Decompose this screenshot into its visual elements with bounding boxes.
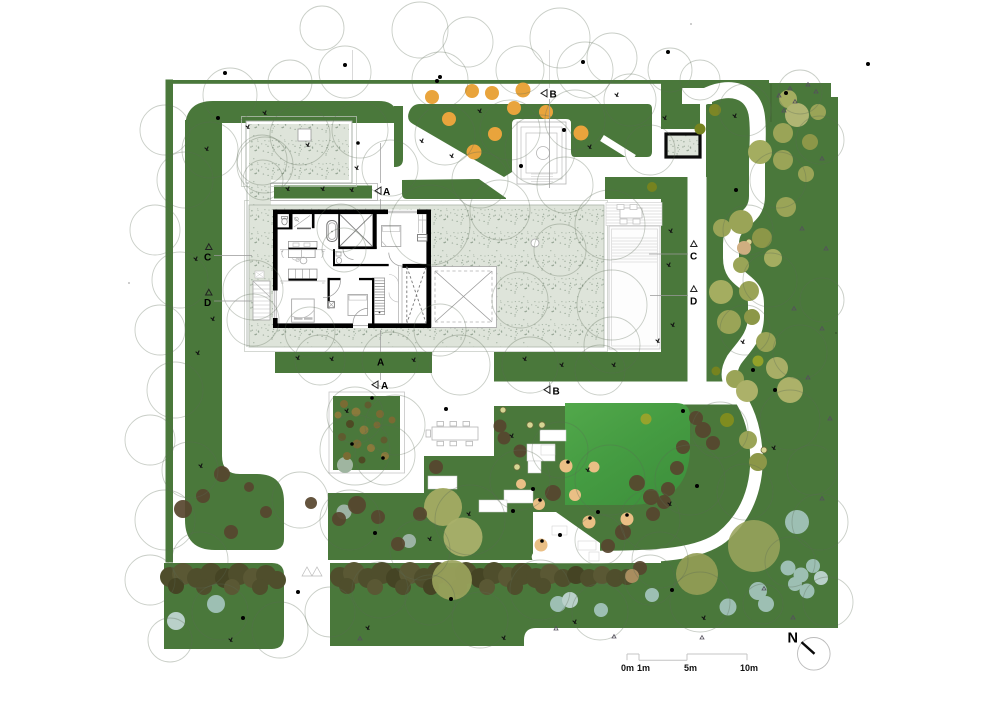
svg-text:B: B — [550, 90, 557, 101]
svg-text:5m: 5m — [684, 663, 697, 673]
svg-text:A: A — [377, 358, 384, 369]
svg-text:D: D — [204, 298, 211, 309]
svg-text:A: A — [381, 381, 388, 392]
svg-text:N: N — [788, 631, 798, 647]
svg-text:1m: 1m — [637, 663, 650, 673]
svg-text:C: C — [204, 253, 211, 264]
svg-text:D: D — [690, 297, 697, 308]
svg-text:B: B — [553, 387, 560, 398]
svg-text:0m: 0m — [621, 663, 634, 673]
svg-text:C: C — [690, 252, 697, 263]
svg-text:10m: 10m — [740, 663, 758, 673]
svg-text:A: A — [383, 187, 390, 198]
